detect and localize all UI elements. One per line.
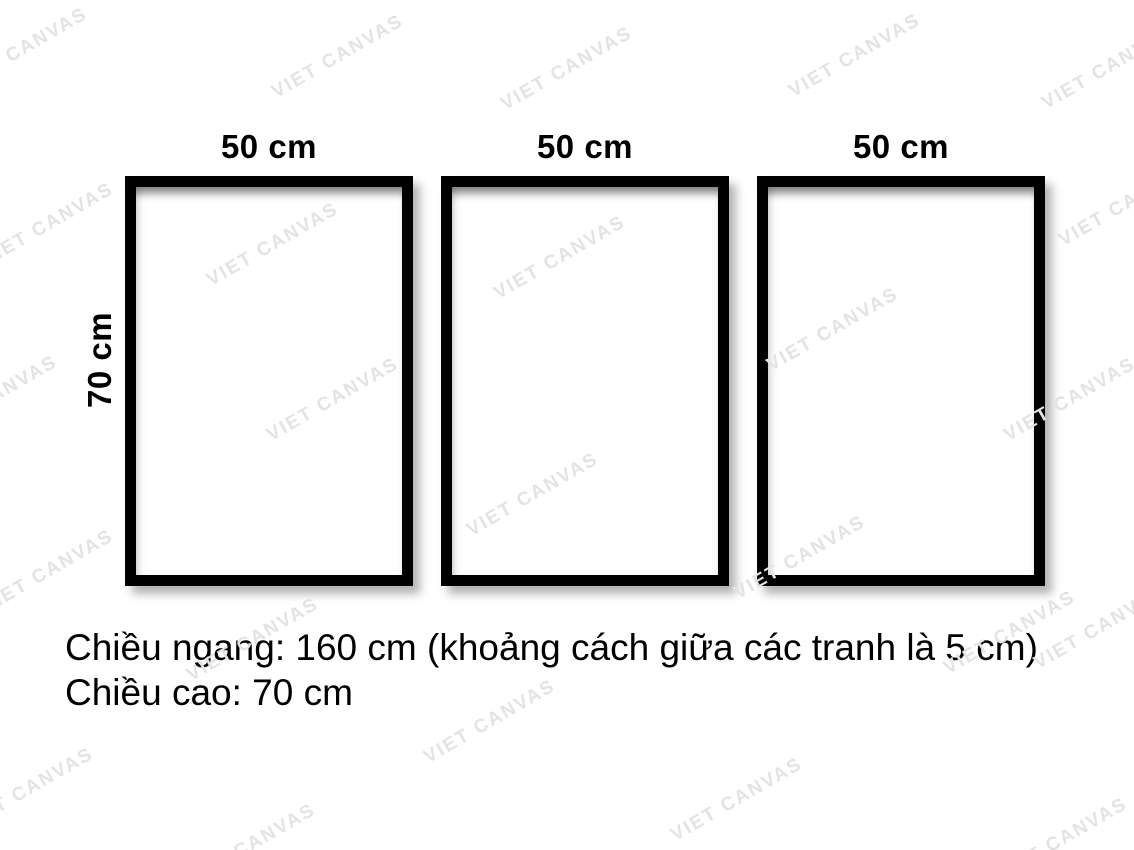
- watermark-text: VIET CANVAS: [1055, 158, 1134, 251]
- watermark-text: VIET CANVAS: [0, 351, 62, 444]
- frame-3: [757, 176, 1045, 586]
- canvas-size-diagram: 50 cm 50 cm 50 cm 70 cm Chiều ngang: 160…: [0, 0, 1134, 850]
- watermark-text: VIET CANVAS: [785, 9, 924, 102]
- caption-line-vertical: Chiều cao: 70 cm: [65, 670, 1038, 715]
- frame-2: [441, 176, 729, 586]
- watermark-text: VIET CANVAS: [1030, 581, 1134, 674]
- caption: Chiều ngang: 160 cm (khoảng cách giữa cá…: [65, 625, 1038, 715]
- watermark-text: VIET CANVAS: [268, 10, 407, 103]
- watermark-text: VIET CANVAS: [0, 178, 118, 271]
- caption-line-horizontal: Chiều ngang: 160 cm (khoảng cách giữa cá…: [65, 625, 1038, 670]
- watermark-text: VIET CANVAS: [667, 753, 806, 846]
- frame-1-width-label: 50 cm: [125, 128, 413, 166]
- watermark-text: VIET CANVAS: [0, 525, 118, 618]
- height-label: 70 cm: [81, 312, 119, 408]
- frame-3-width-label: 50 cm: [757, 128, 1045, 166]
- watermark-text: VIET CANVAS: [992, 793, 1131, 850]
- watermark-text: VIET CANVAS: [0, 743, 98, 836]
- watermark-text: VIET CANVAS: [1038, 21, 1134, 114]
- frame-1: [125, 176, 413, 586]
- watermark-text: VIET CANVAS: [0, 3, 92, 96]
- watermark-text: VIET CANVAS: [180, 799, 319, 850]
- watermark-text: VIET CANVAS: [497, 22, 636, 115]
- frame-2-width-label: 50 cm: [441, 128, 729, 166]
